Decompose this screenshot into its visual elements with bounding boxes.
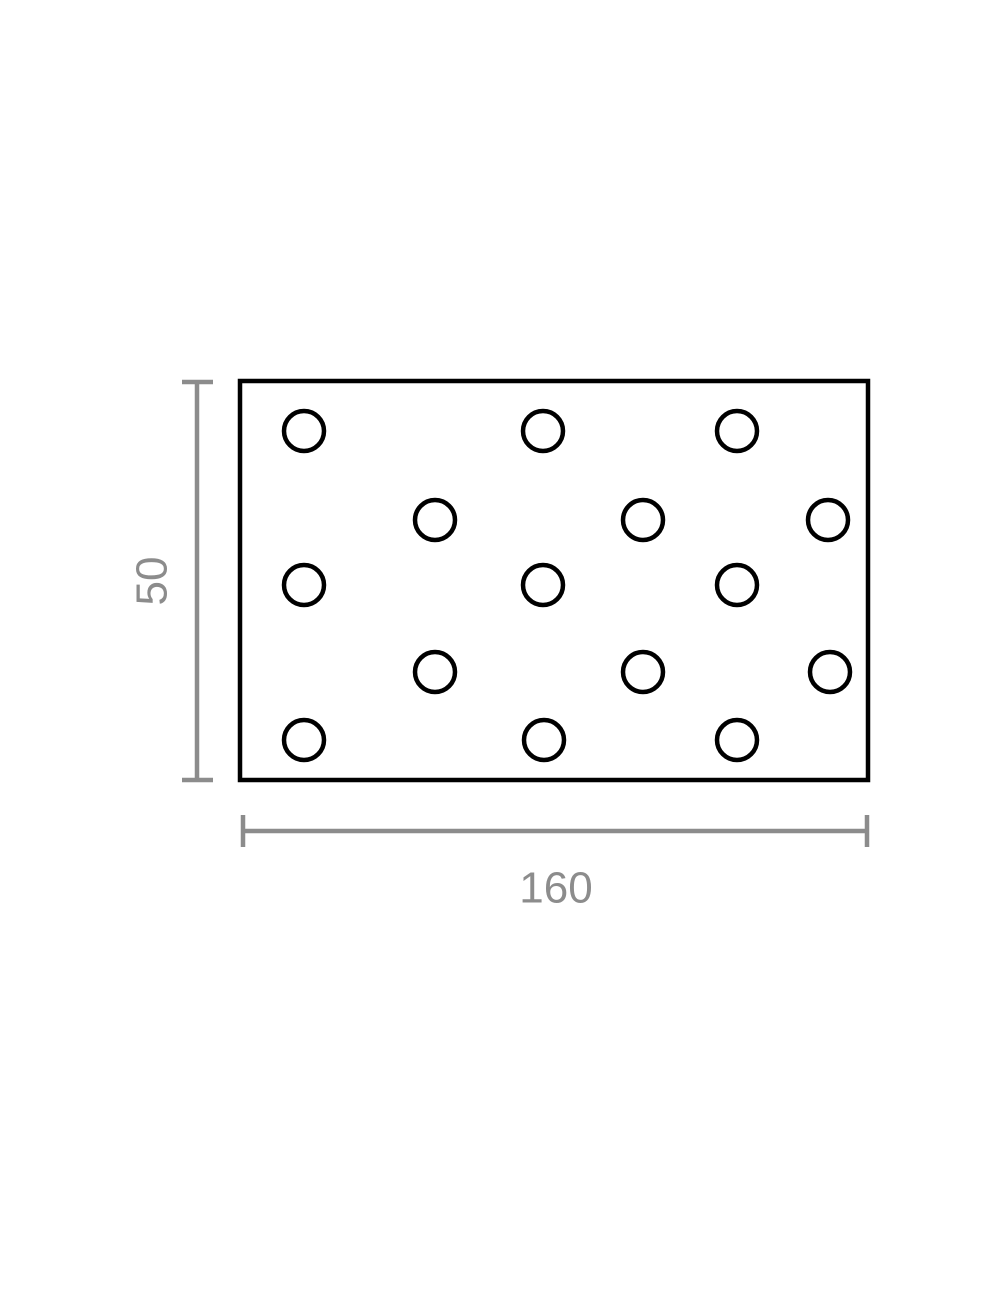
plate-diagram: 50 160 (0, 0, 1000, 1300)
hole (717, 720, 757, 760)
drawing-canvas: 50 160 (0, 0, 1000, 1300)
width-dimension-label: 160 (519, 864, 592, 913)
hole (415, 652, 455, 692)
hole (717, 411, 757, 451)
hole (623, 500, 663, 540)
height-dimension-label: 50 (128, 557, 177, 606)
hole (415, 500, 455, 540)
hole (284, 411, 324, 451)
hole (623, 652, 663, 692)
width-dimension-line: 160 (243, 815, 867, 913)
hole (523, 411, 563, 451)
hole (808, 500, 848, 540)
hole (524, 720, 564, 760)
hole (717, 565, 757, 605)
hole (284, 720, 324, 760)
hole (810, 652, 850, 692)
hole (284, 565, 324, 605)
height-dimension-line: 50 (128, 382, 214, 780)
hole (523, 565, 563, 605)
